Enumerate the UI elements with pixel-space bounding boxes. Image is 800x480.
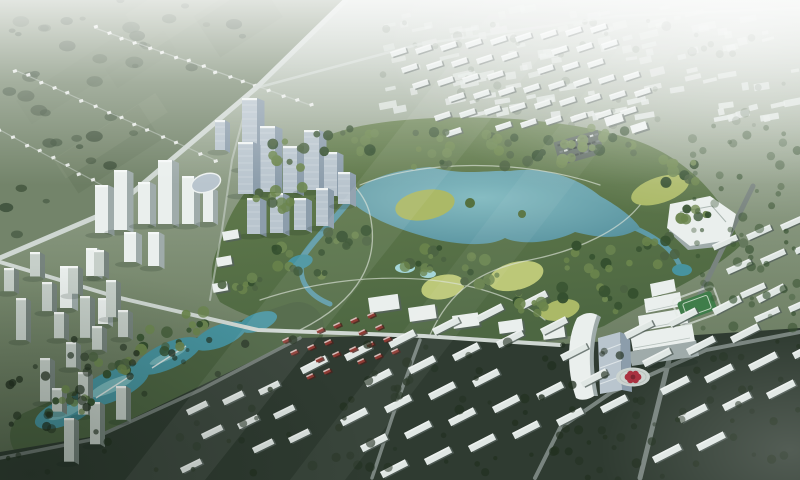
street-tree bbox=[547, 361, 556, 370]
park-tree bbox=[415, 261, 421, 267]
tree bbox=[696, 254, 701, 259]
park-tree bbox=[531, 300, 537, 306]
tower-roof bbox=[294, 198, 306, 200]
park-tree bbox=[539, 302, 549, 312]
street-tree bbox=[569, 406, 576, 413]
tree bbox=[710, 295, 717, 302]
tower-side bbox=[136, 232, 142, 265]
tower-shadow bbox=[196, 222, 217, 228]
tower-roof bbox=[86, 248, 97, 250]
tree bbox=[757, 265, 764, 272]
street-tree bbox=[384, 463, 393, 472]
park-tree bbox=[420, 269, 428, 277]
tower-front bbox=[95, 185, 108, 233]
park-tree bbox=[590, 269, 600, 279]
street-tree bbox=[465, 352, 472, 359]
park-tree bbox=[286, 197, 295, 206]
park-tree bbox=[237, 284, 244, 291]
street-tree bbox=[474, 376, 479, 381]
tree bbox=[780, 285, 788, 293]
tree bbox=[792, 246, 796, 250]
park-tree bbox=[599, 285, 611, 297]
tree bbox=[755, 224, 765, 234]
park-tree bbox=[651, 238, 659, 246]
tower-side bbox=[213, 188, 218, 225]
street-tree bbox=[565, 447, 573, 455]
park-tree bbox=[660, 251, 669, 260]
render-canvas bbox=[0, 0, 800, 480]
street-tree bbox=[488, 400, 492, 404]
tree bbox=[749, 301, 755, 307]
street-tree bbox=[542, 355, 548, 361]
tower-roof bbox=[94, 250, 104, 252]
street-tree bbox=[476, 367, 483, 374]
park-tree bbox=[257, 277, 262, 282]
street-tree bbox=[568, 381, 576, 389]
park-tree bbox=[400, 261, 411, 272]
street-tree bbox=[459, 396, 466, 403]
tower-front bbox=[124, 232, 136, 262]
flower-center bbox=[631, 375, 636, 380]
park-tree bbox=[670, 249, 680, 259]
park-tree bbox=[642, 237, 651, 246]
park-tree bbox=[606, 245, 616, 255]
park-tree bbox=[614, 302, 622, 310]
park-tree bbox=[556, 282, 568, 294]
tree bbox=[784, 229, 789, 234]
street-tree bbox=[523, 410, 528, 415]
tree bbox=[763, 291, 771, 299]
street-tree bbox=[601, 371, 609, 379]
tower-front bbox=[316, 188, 328, 226]
street-tree bbox=[363, 340, 372, 349]
tower-shadow bbox=[140, 266, 163, 272]
tree bbox=[728, 321, 738, 331]
street-tree bbox=[562, 425, 570, 433]
park-tree bbox=[267, 197, 278, 208]
park-tree bbox=[252, 285, 258, 291]
tree bbox=[728, 227, 734, 233]
park-tree bbox=[557, 292, 568, 303]
street-tree bbox=[474, 461, 480, 467]
tree bbox=[700, 228, 704, 232]
tree bbox=[704, 281, 714, 291]
park-tree bbox=[272, 245, 282, 255]
street-tree bbox=[587, 440, 592, 445]
park-tree bbox=[620, 285, 628, 293]
tower-front bbox=[247, 198, 260, 234]
tree bbox=[746, 262, 756, 272]
farm-tree bbox=[16, 185, 27, 192]
park-tree bbox=[514, 298, 526, 310]
park-tree bbox=[605, 265, 613, 273]
tree bbox=[739, 233, 743, 237]
park-pond bbox=[672, 264, 692, 276]
park-tree bbox=[571, 241, 581, 251]
tree bbox=[750, 296, 754, 300]
park-tree bbox=[602, 296, 608, 302]
street-tree bbox=[503, 338, 513, 348]
park-tree bbox=[653, 259, 663, 269]
tree bbox=[733, 257, 743, 267]
tower-side bbox=[108, 185, 115, 236]
street-tree bbox=[481, 468, 489, 476]
street-tree bbox=[601, 348, 608, 355]
street-tree bbox=[560, 342, 565, 347]
park-tree bbox=[252, 195, 260, 203]
lake-island bbox=[465, 198, 475, 208]
park-tree bbox=[436, 245, 442, 251]
tree bbox=[701, 326, 706, 331]
park-tree bbox=[589, 254, 595, 260]
tower-roof bbox=[148, 232, 159, 234]
street-tree bbox=[512, 420, 518, 426]
park-tree bbox=[546, 298, 551, 303]
park-tree bbox=[626, 260, 633, 267]
tree bbox=[748, 255, 753, 260]
street-tree bbox=[574, 425, 583, 434]
tower-front bbox=[148, 232, 159, 266]
street-tree bbox=[539, 394, 545, 400]
tree bbox=[694, 240, 700, 246]
tower-roof bbox=[95, 185, 108, 187]
park-tree bbox=[515, 290, 522, 297]
tree bbox=[791, 311, 796, 316]
tree bbox=[700, 272, 705, 277]
park-tree bbox=[278, 205, 287, 214]
park-tree bbox=[628, 288, 639, 299]
street-tree bbox=[549, 447, 558, 456]
tower-side bbox=[150, 182, 156, 227]
street-tree bbox=[444, 459, 448, 463]
tower-roof bbox=[316, 188, 328, 190]
tree bbox=[730, 241, 736, 247]
street-tree bbox=[596, 467, 603, 474]
street-tree bbox=[493, 456, 497, 460]
park-tree bbox=[247, 273, 258, 284]
street-tree bbox=[441, 433, 447, 439]
park-tree bbox=[441, 257, 446, 262]
park-tree bbox=[286, 250, 294, 258]
tree bbox=[768, 314, 773, 319]
tower-shadow bbox=[148, 224, 177, 230]
farm-tree bbox=[43, 199, 50, 204]
street-tree bbox=[455, 405, 465, 415]
street-tree bbox=[520, 394, 530, 404]
street-tree bbox=[616, 351, 624, 359]
tree bbox=[789, 294, 796, 301]
tower-side bbox=[260, 198, 267, 237]
street-tree bbox=[556, 432, 563, 439]
tree bbox=[745, 245, 754, 254]
park-tree bbox=[565, 265, 570, 270]
tree bbox=[764, 261, 770, 267]
park-tree bbox=[218, 280, 227, 289]
park-tree bbox=[636, 246, 642, 252]
park-tree bbox=[272, 261, 283, 272]
street-tree bbox=[575, 457, 584, 466]
tower-front bbox=[138, 182, 150, 224]
park-tree bbox=[564, 257, 570, 263]
park-tree bbox=[243, 281, 249, 287]
farm-tree bbox=[11, 231, 23, 239]
tower-roof bbox=[124, 232, 136, 234]
park-tree bbox=[428, 254, 433, 259]
tower-roof bbox=[30, 252, 40, 254]
tower-shadow bbox=[260, 233, 287, 239]
tree bbox=[784, 240, 788, 244]
park-tree bbox=[660, 236, 671, 247]
street-tree bbox=[529, 453, 533, 457]
tower-shadow bbox=[285, 230, 310, 236]
street-tree bbox=[393, 447, 397, 451]
tower-shadow bbox=[173, 224, 198, 230]
tower-front bbox=[294, 198, 306, 230]
tree bbox=[729, 295, 737, 303]
tower-shadow bbox=[115, 262, 140, 268]
tree bbox=[691, 228, 696, 233]
tower-front bbox=[598, 332, 622, 394]
tower-side bbox=[159, 232, 165, 269]
aerial-render bbox=[0, 0, 800, 480]
